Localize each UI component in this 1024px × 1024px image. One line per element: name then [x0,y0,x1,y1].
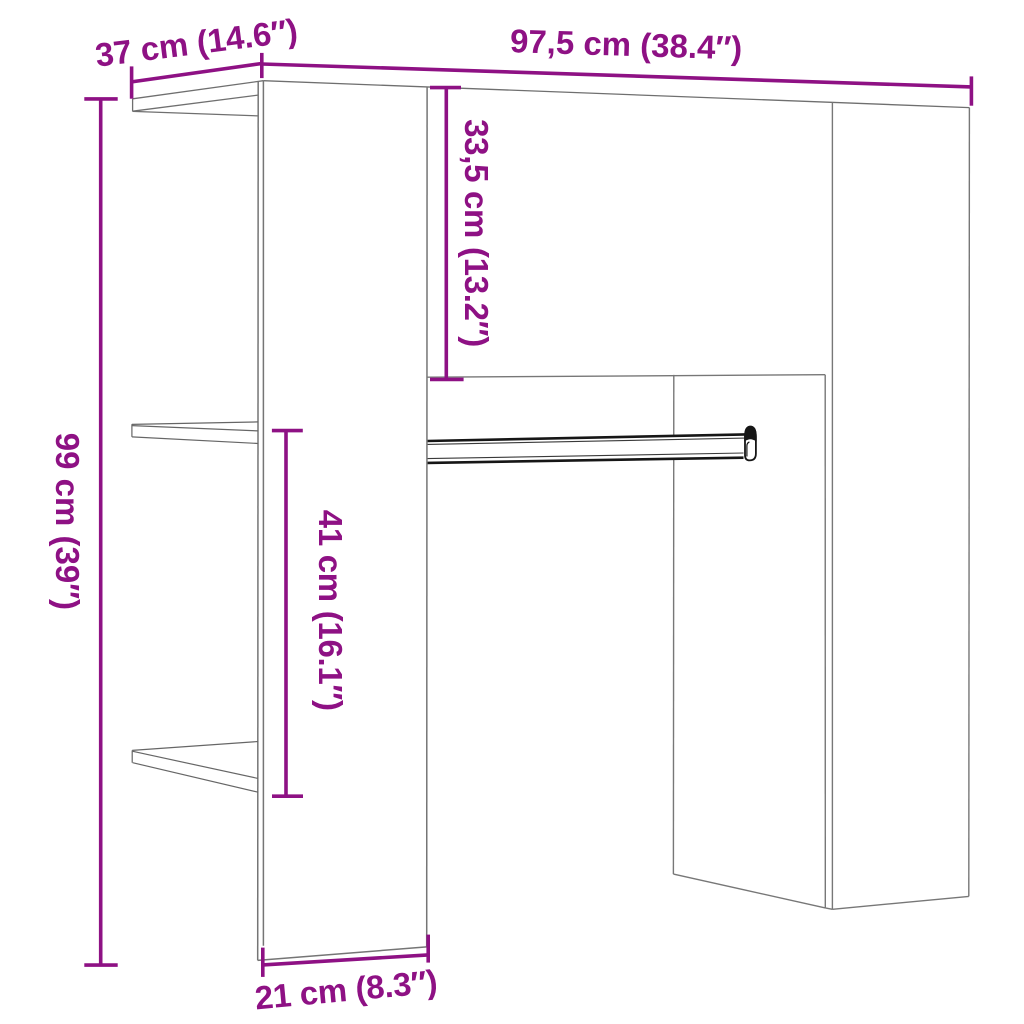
svg-text:99 cm (39″): 99 cm (39″) [49,433,86,610]
svg-text:97,5 cm (38.4″): 97,5 cm (38.4″) [509,22,742,66]
svg-text:33,5 cm (13.2″): 33,5 cm (13.2″) [458,119,495,347]
svg-text:41 cm (16.1″): 41 cm (16.1″) [312,510,349,711]
